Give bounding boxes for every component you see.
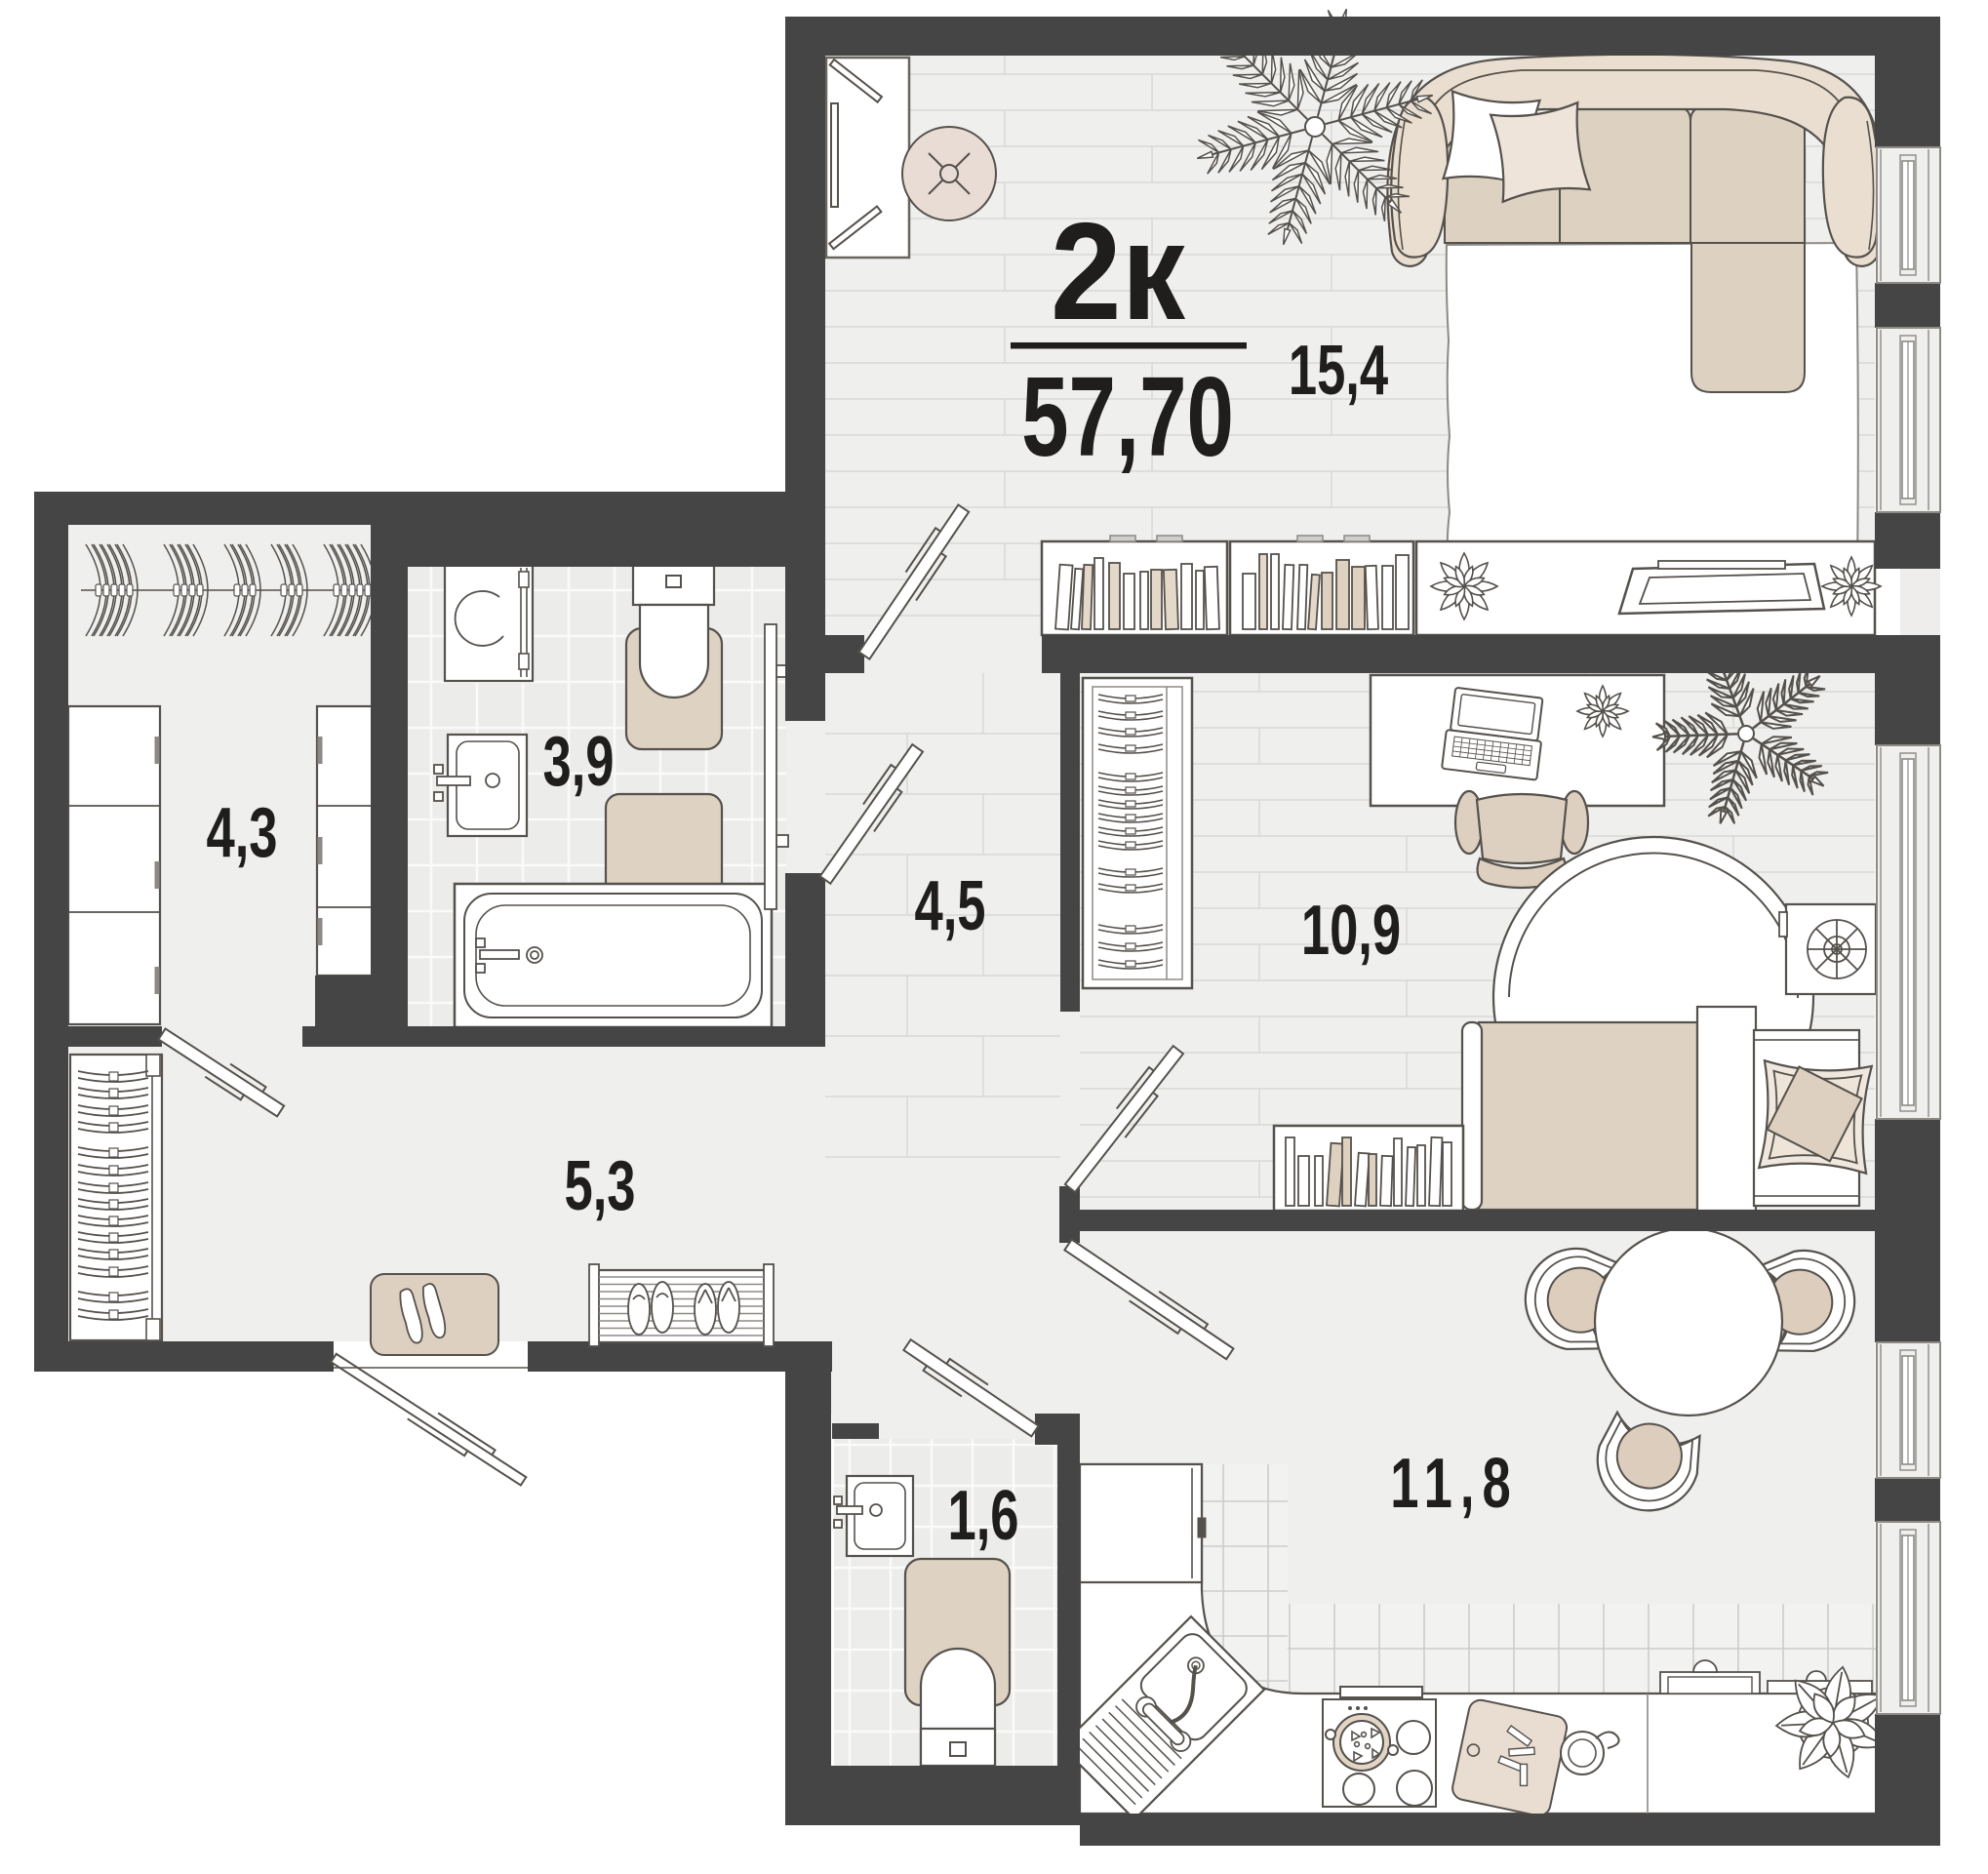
svg-text:4,3: 4,3	[206, 794, 277, 872]
svg-text:57,70: 57,70	[1021, 353, 1234, 480]
svg-text:1,6: 1,6	[947, 1477, 1018, 1555]
svg-text:15,4: 15,4	[1289, 332, 1388, 410]
svg-text:4,5: 4,5	[914, 867, 985, 945]
svg-text:11,8: 11,8	[1390, 1445, 1518, 1523]
svg-text:2к: 2к	[1051, 193, 1186, 348]
svg-text:3,9: 3,9	[542, 723, 614, 801]
svg-text:5,3: 5,3	[564, 1147, 635, 1225]
svg-text:10,9: 10,9	[1301, 892, 1401, 970]
